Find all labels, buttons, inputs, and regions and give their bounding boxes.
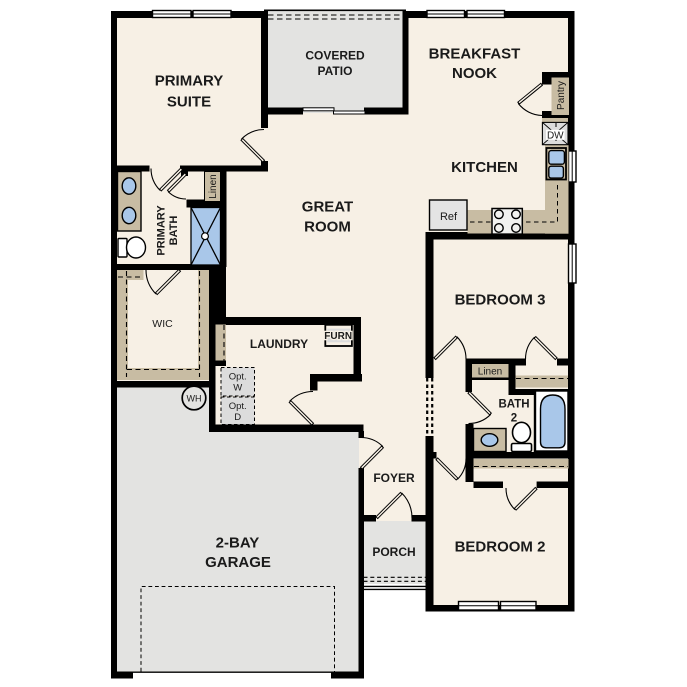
svg-text:Pantry: Pantry	[556, 81, 567, 110]
svg-text:BEDROOM 2: BEDROOM 2	[455, 539, 546, 556]
svg-text:COVERED: COVERED	[305, 49, 365, 63]
svg-text:DW: DW	[547, 131, 564, 142]
svg-text:PRIMARY: PRIMARY	[156, 205, 168, 256]
svg-text:Linen: Linen	[208, 174, 219, 198]
svg-text:BREAKFAST: BREAKFAST	[429, 46, 521, 63]
svg-text:W: W	[233, 383, 242, 394]
svg-text:ROOM: ROOM	[304, 219, 351, 236]
svg-text:WIC: WIC	[152, 318, 173, 330]
svg-text:LAUNDRY: LAUNDRY	[250, 337, 308, 351]
svg-text:D: D	[234, 412, 241, 423]
svg-text:PRIMARY: PRIMARY	[155, 73, 224, 90]
svg-text:2: 2	[511, 413, 517, 425]
svg-text:Opt.: Opt.	[229, 401, 247, 412]
svg-text:WH: WH	[187, 394, 202, 404]
svg-text:SUITE: SUITE	[167, 94, 211, 111]
svg-text:BATH: BATH	[498, 399, 529, 411]
svg-text:Linen: Linen	[478, 367, 502, 378]
svg-text:2-BAY: 2-BAY	[216, 535, 260, 552]
svg-text:Opt.: Opt.	[229, 372, 247, 383]
svg-text:PORCH: PORCH	[372, 545, 415, 559]
svg-text:FURN: FURN	[324, 331, 352, 342]
svg-text:NOOK: NOOK	[452, 65, 497, 82]
svg-text:BATH: BATH	[168, 216, 180, 246]
svg-text:GARAGE: GARAGE	[205, 554, 271, 571]
svg-text:PATIO: PATIO	[318, 64, 353, 78]
svg-text:FOYER: FOYER	[373, 471, 415, 485]
svg-text:BEDROOM 3: BEDROOM 3	[455, 292, 546, 309]
svg-text:KITCHEN: KITCHEN	[451, 159, 518, 176]
svg-text:GREAT: GREAT	[302, 199, 353, 216]
svg-text:Ref: Ref	[440, 211, 458, 223]
